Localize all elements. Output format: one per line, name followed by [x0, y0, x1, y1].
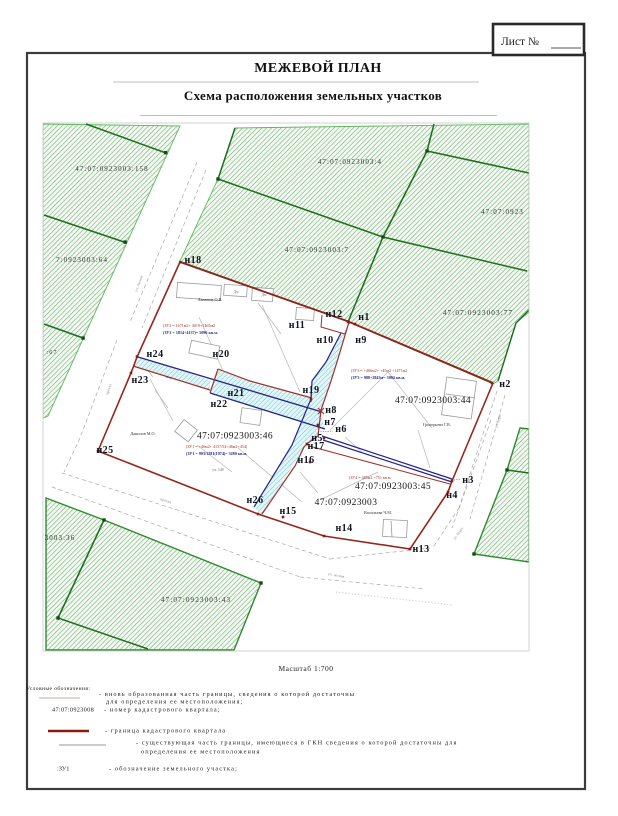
svg-text:н15: н15 — [280, 506, 297, 517]
svg-text:47:07:0923003:4: 47:07:0923003:4 — [318, 158, 382, 166]
svg-text:н21: н21 — [228, 388, 245, 399]
svg-text:н4: н4 — [446, 490, 458, 501]
svg-text:уч. 140: уч. 140 — [212, 468, 224, 472]
svg-text:н3: н3 — [462, 475, 474, 486]
svg-text:(ЗУ1 = +46м2+ 4157/54+46м2+454: (ЗУ1 = +46м2+ 4157/54+46м2+454) — [186, 444, 248, 449]
svg-text:47:07:0923003:45: 47:07:0923003:45 — [355, 482, 431, 492]
svg-text:(ЗУ3 = +466м2+ +45м2 +1471м2: (ЗУ3 = +466м2+ +45м2 +1471м2 — [351, 368, 407, 373]
svg-text:Дм: Дм — [234, 290, 239, 294]
svg-text:47:07:0923008: 47:07:0923008 — [52, 707, 94, 714]
svg-text:Васильева Ч.М.: Васильева Ч.М. — [364, 510, 392, 515]
svg-text:Масштаб 1:700: Масштаб 1:700 — [278, 664, 333, 673]
svg-text:н1: н1 — [358, 312, 370, 323]
svg-text:н17: н17 — [308, 441, 325, 452]
svg-text:47:07:0923003:77: 47:07:0923003:77 — [443, 309, 513, 317]
svg-text:- обозначение земельного участ: - обозначение земельного участка; — [109, 766, 238, 773]
svg-text:(ЗУ1 = 993/1281(1974)= 3280 кв: (ЗУ1 = 993/1281(1974)= 3280 кв.м. — [186, 451, 247, 456]
svg-text:н22: н22 — [211, 399, 228, 410]
svg-text:н12: н12 — [326, 309, 343, 320]
svg-text:47:07:0923003:44: 47:07:0923003:44 — [395, 396, 471, 406]
svg-text:47:07:0923003: 47:07:0923003 — [315, 498, 378, 508]
svg-text:н7: н7 — [324, 417, 336, 428]
svg-text:н16: н16 — [298, 455, 315, 466]
svg-text:н9: н9 — [355, 335, 367, 346]
svg-text:МЕЖЕВОЙ ПЛАН: МЕЖЕВОЙ ПЛАН — [254, 59, 381, 76]
svg-text:для определения ее местоположе: для определения ее местоположения; — [106, 699, 243, 706]
svg-text:н10: н10 — [317, 335, 334, 346]
svg-text:- граница кадастрового квартал: - граница кадастрового квартала — [105, 728, 226, 735]
svg-text:- существующая часть границы,: - существующая часть границы, имеющиеся … — [136, 740, 458, 747]
svg-text:Лавашов О.В.: Лавашов О.В. — [198, 297, 223, 302]
svg-text:- вновь образованная часть гра: - вновь образованная часть границы, свед… — [99, 691, 355, 698]
svg-text:47:07:0923003:7: 47:07:0923003:7 — [285, 246, 349, 254]
svg-text:Схема расположения земельных у: Схема расположения земельных участков — [184, 88, 442, 103]
svg-text:3003:36: 3003:36 — [45, 534, 76, 542]
svg-text:(ЗУ3 = 988+2843м= 3004 кв.м.: (ЗУ3 = 988+2843м= 3004 кв.м. — [351, 375, 405, 380]
svg-text:н6: н6 — [335, 424, 347, 435]
svg-text:н11: н11 — [289, 320, 305, 331]
svg-text:Григорьева Г.В.: Григорьева Г.В. — [423, 422, 451, 427]
svg-text:определения ее местоположения: определения ее местоположения — [141, 749, 260, 756]
svg-text:Дм: Дм — [262, 293, 267, 297]
svg-text:н13: н13 — [413, 544, 430, 555]
svg-text:н19: н19 — [303, 385, 320, 396]
svg-text:(ЗУ4 = 485м2 +751 кв.м.: (ЗУ4 = 485м2 +751 кв.м. — [349, 475, 391, 480]
svg-text:н23: н23 — [132, 375, 149, 386]
svg-text:Данилов М.О.: Данилов М.О. — [130, 431, 155, 436]
svg-text:н26: н26 — [247, 495, 264, 506]
svg-text:н18: н18 — [185, 255, 202, 266]
svg-text:н20: н20 — [213, 349, 230, 360]
svg-text:н14: н14 — [336, 523, 353, 534]
svg-text:Лист №: Лист № — [501, 36, 539, 48]
svg-text:7:0923003:64: 7:0923003:64 — [56, 256, 108, 264]
svg-text::ЗУ1: :ЗУ1 — [57, 766, 69, 773]
svg-text:н24: н24 — [147, 349, 164, 360]
svg-text:47:07:0923003:43: 47:07:0923003:43 — [161, 596, 231, 604]
svg-text:47:07:0923: 47:07:0923 — [481, 208, 524, 216]
svg-text:Условные обозначения:: Условные обозначения: — [26, 685, 90, 692]
svg-text:(ЗУ2 = 1814+4137)= 5096 кв.м.: (ЗУ2 = 1814+4137)= 5096 кв.м. — [163, 330, 218, 335]
svg-text:47:07:0923003:158: 47:07:0923003:158 — [75, 165, 149, 173]
svg-text:н8: н8 — [325, 405, 337, 416]
svg-text:- номер кадастрового квартала;: - номер кадастрового квартала; — [104, 707, 221, 714]
svg-text:47:07:0923003:46: 47:07:0923003:46 — [197, 432, 273, 442]
svg-text:(ЗУ2 = 1671м2+ 4019+1465м2: (ЗУ2 = 1671м2+ 4019+1465м2 — [163, 323, 215, 328]
svg-text:н2: н2 — [499, 379, 511, 390]
svg-text:н25: н25 — [97, 445, 114, 456]
svg-text::67: :67 — [46, 349, 57, 356]
